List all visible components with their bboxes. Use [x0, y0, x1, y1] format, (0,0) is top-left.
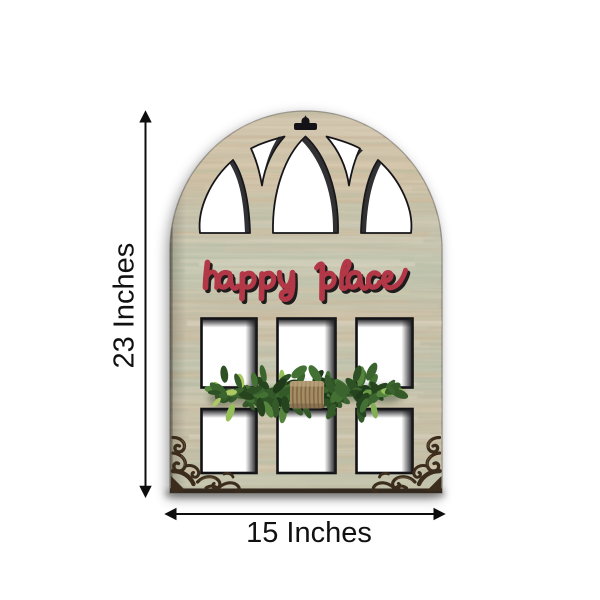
- svg-text:15 Inches: 15 Inches: [246, 517, 372, 549]
- svg-text:23 Inches: 23 Inches: [109, 243, 141, 369]
